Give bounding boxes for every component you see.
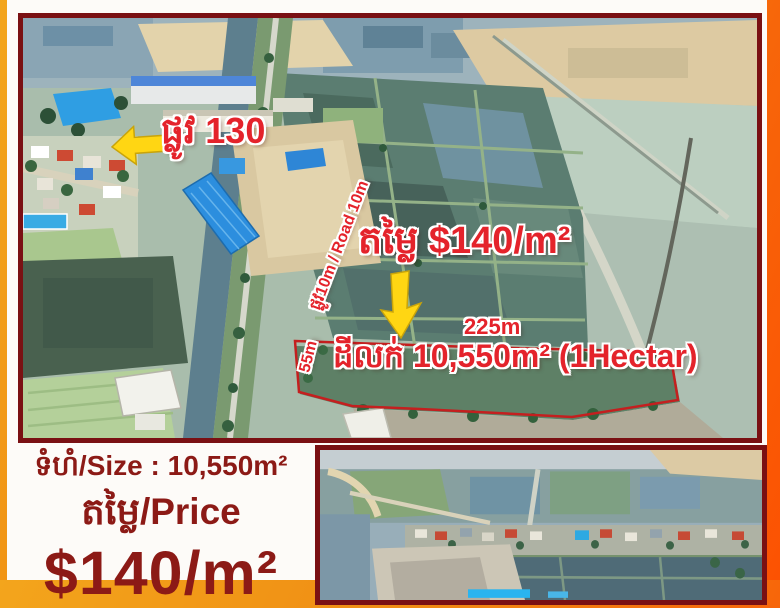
width-225m-label: 225m (464, 315, 520, 338)
price-label: តម្លៃ/Price (7, 489, 315, 543)
secondary-aerial-scene (320, 450, 762, 600)
land-sale-label: ដីលក់ 10,550m² (1Hectar) (333, 340, 698, 374)
price-value: $140/m² (7, 538, 315, 608)
secondary-aerial-photo (315, 445, 767, 605)
fields-bottom-left (23, 228, 188, 438)
main-aerial-photo: ផ្លូវ 130 ផ្លូវ10m / Road 10m តម្លៃ $140… (18, 13, 762, 443)
white-panel: ផ្លូវ 130 ផ្លូវ10m / Road 10m តម្លៃ $140… (7, 0, 767, 580)
price-overlay-label: តម្លៃ $140/m² (358, 222, 570, 262)
poster-page: { "main_photo": { "road_sign": "ផ្លូវ 13… (0, 0, 780, 580)
size-line: ទំហំ/Size : 10,550m² (7, 448, 315, 489)
road-130-label: ផ្លូវ 130 (161, 112, 265, 150)
